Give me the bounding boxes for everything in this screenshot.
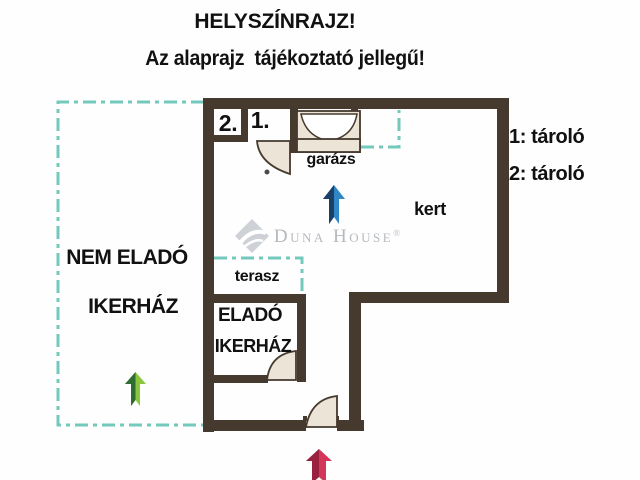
legend-storage-2: 2: tároló	[509, 163, 584, 186]
room-label-storage1: 1.	[251, 107, 270, 134]
legend-storage-1: 1: tároló	[509, 126, 584, 149]
entry-jamb-left	[303, 416, 307, 421]
registered-mark: ®	[393, 228, 400, 238]
wall-top	[203, 98, 509, 109]
room-label-terrace: terasz	[235, 268, 279, 286]
page-title: HELYSZÍNRAJZ!	[194, 10, 355, 34]
wall-left	[203, 98, 214, 432]
storage-boundary	[361, 110, 399, 147]
wall-bottom-right	[337, 420, 364, 431]
room-label-storage2: 2.	[219, 110, 238, 137]
wall-bottom-left	[203, 420, 306, 431]
wall-garden-bottom	[349, 292, 509, 303]
wall-house-top	[214, 294, 305, 303]
page-subtitle: Az alaprajz tájékoztató jellegű!	[145, 47, 424, 71]
wall-inner-right	[349, 292, 361, 431]
watermark-brand: Duna House®	[274, 226, 400, 248]
label-not-for-sale-line2: IKERHÁZ	[88, 295, 178, 319]
wall-house-right	[297, 294, 306, 382]
north-arrow-green-icon	[125, 372, 146, 406]
door-stop-dot	[265, 170, 270, 175]
north-arrow-red-icon	[306, 449, 332, 480]
duna-house-logo-icon	[235, 219, 269, 253]
north-arrow-blue-icon	[323, 185, 345, 224]
interior-door-swing-icon	[257, 141, 290, 174]
label-for-sale-line1: ELADÓ	[218, 305, 282, 327]
label-not-for-sale-line1: NEM ELADÓ	[66, 246, 188, 270]
label-for-sale-line2: IKERHÁZ	[215, 336, 292, 357]
wall-house-bottom	[214, 375, 268, 383]
room-label-garage: garázs	[307, 151, 356, 169]
watermark-brand-text: Duna House	[274, 226, 393, 247]
room-label-garden: kert	[414, 199, 446, 220]
entry-door-swing-icon	[306, 396, 337, 427]
wall-right	[497, 98, 509, 303]
site-plan-page: HELYSZÍNRAJZ! Az alaprajz tájékoztató je…	[0, 0, 640, 480]
